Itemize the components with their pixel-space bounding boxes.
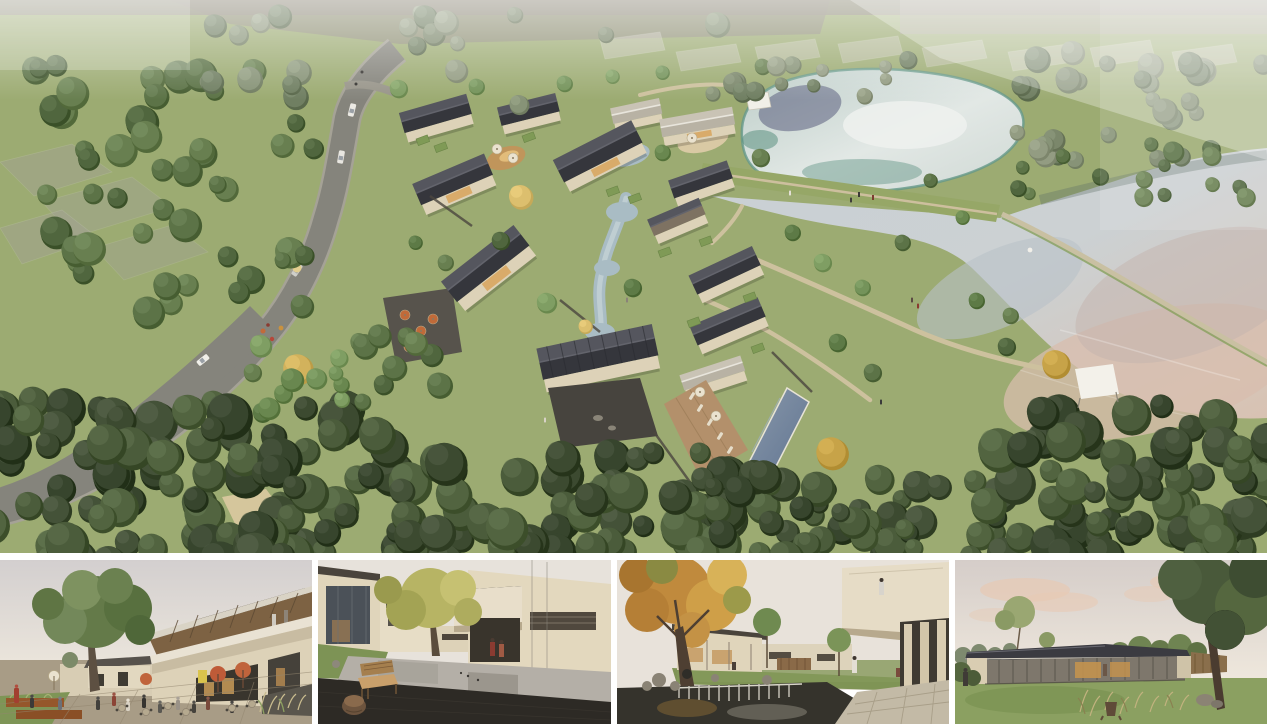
balcony-person — [272, 614, 276, 626]
garden-pond-svg — [617, 560, 949, 724]
aerial-svg — [0, 0, 1267, 553]
thumbnail-lawn-pavilion — [955, 560, 1267, 724]
weir-pond — [617, 682, 857, 724]
street-plaza-svg — [0, 560, 312, 724]
figure — [896, 668, 900, 677]
stone-courtyard — [548, 378, 658, 448]
balcony-slot — [530, 612, 596, 630]
thumbnail-street-plaza — [0, 560, 312, 724]
stump-table — [342, 695, 366, 715]
interior-figure — [1103, 664, 1107, 676]
orange-umbrella — [140, 673, 152, 685]
standing-figure — [963, 672, 968, 686]
parapet-figure — [879, 582, 884, 595]
aerial-site-render — [0, 0, 1267, 553]
presentation-board — [0, 0, 1267, 724]
seated-figure — [732, 662, 736, 670]
thumbnail-water-courtyard — [318, 560, 611, 724]
water-courtyard-svg — [318, 560, 611, 724]
thumbnail-garden-pond — [617, 560, 949, 724]
green-tree — [753, 608, 781, 636]
shore-canopy — [1075, 364, 1119, 399]
red-coat-figure — [499, 644, 504, 657]
thumbnail-row — [0, 560, 1267, 724]
lawn-pavilion-svg — [955, 560, 1267, 724]
small-boat — [1028, 248, 1033, 253]
yellow-menu-sign — [198, 670, 207, 683]
green-tree — [827, 628, 851, 652]
balcony-person — [284, 610, 288, 623]
stump — [1105, 702, 1117, 716]
wood-screen — [777, 658, 811, 670]
red-coat-figure — [490, 642, 495, 656]
white-figure — [852, 660, 857, 673]
warm-interior — [1075, 662, 1101, 678]
